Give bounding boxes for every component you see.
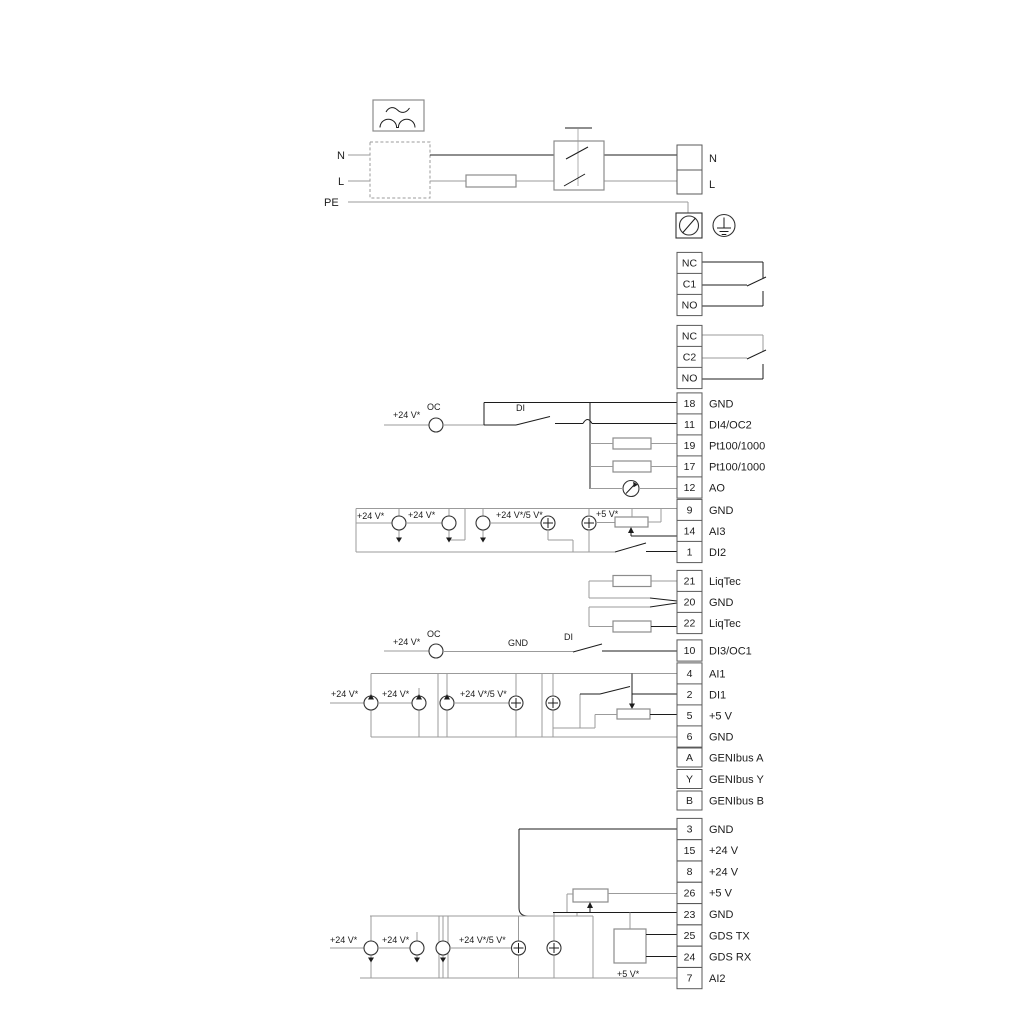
fuse <box>466 175 516 187</box>
terminal-number: 3 <box>687 824 693 836</box>
terminal-label: LiqTec <box>709 576 741 588</box>
relay-terminal-label: NO <box>682 300 698 312</box>
dashed-supply-box <box>370 142 430 198</box>
relay-terminal-label: NC <box>682 258 698 270</box>
terminal-number: 21 <box>684 576 696 588</box>
wiring-diagram: N L PE N L <box>0 0 1024 1024</box>
main-switch <box>554 128 604 190</box>
terminal-number: 22 <box>684 618 696 630</box>
terminal-number: 9 <box>687 505 693 517</box>
pt100-resistor <box>613 461 651 472</box>
terminal-label: DI3/OC1 <box>709 645 752 657</box>
pe-screw-terminal <box>676 213 702 238</box>
supply-label: +24 V* <box>357 511 385 521</box>
terminal-number: 17 <box>684 461 696 473</box>
current-source-icon <box>410 941 424 955</box>
terminal-label: +24 V <box>709 866 739 878</box>
terminal-number: 26 <box>684 888 696 900</box>
terminal-number: 2 <box>687 689 693 701</box>
terminal-label: GND <box>709 731 734 743</box>
terminal-number: 12 <box>684 482 696 494</box>
terminal-label: +24 V <box>709 845 739 857</box>
terminal-number: 14 <box>684 526 696 538</box>
di-label: DI <box>564 632 573 642</box>
supply-label: +24 V* <box>382 689 410 699</box>
terminal-label: GDS RX <box>709 952 752 964</box>
terminal-number: 6 <box>687 731 693 743</box>
terminal-label: AI1 <box>709 668 726 680</box>
terminal-strip: 18GND11DI4/OC219Pt100/100017Pt100/100012… <box>677 252 765 988</box>
l-line-label: L <box>338 176 344 188</box>
current-source-icon <box>436 941 450 955</box>
io-section-di4: +24 V* OC DI <box>384 402 677 497</box>
terminal-number: 7 <box>687 973 693 985</box>
terminal-n-label: N <box>709 153 717 165</box>
relay-terminal-label: NO <box>682 373 698 385</box>
terminal-label: Pt100/1000 <box>709 440 765 452</box>
terminal-number: 23 <box>684 909 696 921</box>
terminal-number: B <box>686 795 693 807</box>
terminal-label: AI3 <box>709 526 726 538</box>
terminal-number: 5 <box>687 710 693 722</box>
gnd-wire-label: GND <box>508 638 529 648</box>
terminal-number: 24 <box>684 951 696 963</box>
terminal-label: DI2 <box>709 547 726 559</box>
current-source-icon <box>392 516 406 530</box>
supply-label: +24 V* <box>382 935 410 945</box>
terminal-number: 20 <box>684 597 696 609</box>
terminal-label: GENIbus A <box>709 752 764 764</box>
io-section-di3: +24 V* OC GND DI <box>384 629 677 658</box>
di2-switch-blade <box>615 543 646 552</box>
di4-switch-blade <box>516 417 550 426</box>
potentiometer <box>617 709 650 719</box>
earth-ground-icon <box>713 215 735 237</box>
terminal-number: 25 <box>684 930 696 942</box>
io-section-ai3: +24 V* +24 V* +24 V*/5 V* +5 V* <box>356 509 677 553</box>
terminal-label: Pt100/1000 <box>709 461 765 473</box>
current-source-icon <box>364 941 378 955</box>
terminal-number: 4 <box>687 668 693 680</box>
pe-line-label: PE <box>324 197 339 209</box>
terminal-label: DI1 <box>709 689 726 701</box>
potentiometer <box>615 517 648 527</box>
supply-label: +24 V*/5 V* <box>460 689 507 699</box>
oc-label: OC <box>427 629 441 639</box>
current-source-icon <box>476 516 490 530</box>
relay-2-contacts <box>702 335 766 379</box>
n-line-label: N <box>337 150 345 162</box>
terminal-number: 19 <box>684 440 696 452</box>
supply-label: +24 V*/5 V* <box>496 510 543 520</box>
terminal-label: GENIbus Y <box>709 774 764 786</box>
relay-terminal-label: C2 <box>683 352 697 364</box>
supply-label: +24 V* <box>331 689 359 699</box>
terminal-l-label: L <box>709 179 715 191</box>
terminal-number: 8 <box>687 866 693 878</box>
relay-1-contacts <box>702 262 766 306</box>
open-collector-icon <box>429 644 443 658</box>
open-collector-icon <box>429 418 443 432</box>
terminal-number: 10 <box>684 645 696 657</box>
oc-label: OC <box>427 402 441 412</box>
liqtec-section <box>589 576 677 633</box>
supply-label: +24 V* <box>408 510 436 520</box>
terminal-number: 15 <box>684 845 696 857</box>
io-section-ai1: +24 V* +24 V* +24 V*/5 V* <box>330 674 677 738</box>
wiring-diagram-page: N L PE N L <box>0 0 1024 1024</box>
liqtec-resistor <box>613 621 651 632</box>
terminal-label: GND <box>709 597 734 609</box>
terminal-number: 11 <box>684 419 695 431</box>
di1-switch-blade <box>600 687 630 695</box>
terminal-number: 1 <box>687 547 693 559</box>
terminal-label: +5 V <box>709 888 733 900</box>
current-source-icon <box>442 516 456 530</box>
terminal-label: GDS TX <box>709 930 750 942</box>
terminal-number: A <box>686 752 693 764</box>
supply-label: +5 V* <box>617 969 640 979</box>
terminal-label: GND <box>709 505 734 517</box>
terminal-label: GENIbus B <box>709 795 764 807</box>
liqtec-resistor <box>613 576 651 587</box>
gds-sensor-box <box>614 929 646 963</box>
terminal-number: Y <box>686 774 693 786</box>
terminal-label: GND <box>709 398 734 410</box>
di-label: DI <box>516 403 525 413</box>
terminal-label: AI2 <box>709 973 726 985</box>
io-section-bottom: +24 V* +24 V* +24 V*/5 V* +5 V* <box>330 829 677 979</box>
terminal-label: +5 V <box>709 710 733 722</box>
terminal-label: LiqTec <box>709 618 741 630</box>
terminal-label: AO <box>709 482 725 494</box>
terminal-label: GND <box>709 824 734 836</box>
supply-label: +24 V* <box>393 410 421 420</box>
terminal-label: DI4/OC2 <box>709 419 752 431</box>
potentiometer <box>573 889 608 902</box>
terminal-label: GND <box>709 909 734 921</box>
relay-terminal-label: NC <box>682 331 698 343</box>
mains-section: N L PE N L <box>324 100 735 238</box>
supply-label: +24 V* <box>330 935 358 945</box>
relay-terminal-label: C1 <box>683 279 697 291</box>
mains-terminal-block: N L <box>677 145 717 194</box>
pt100-resistor <box>613 438 651 449</box>
supply-label: +24 V*/5 V* <box>459 935 506 945</box>
supply-label: +24 V* <box>393 637 421 647</box>
di3-switch-blade <box>573 644 602 652</box>
terminal-number: 18 <box>684 398 696 410</box>
